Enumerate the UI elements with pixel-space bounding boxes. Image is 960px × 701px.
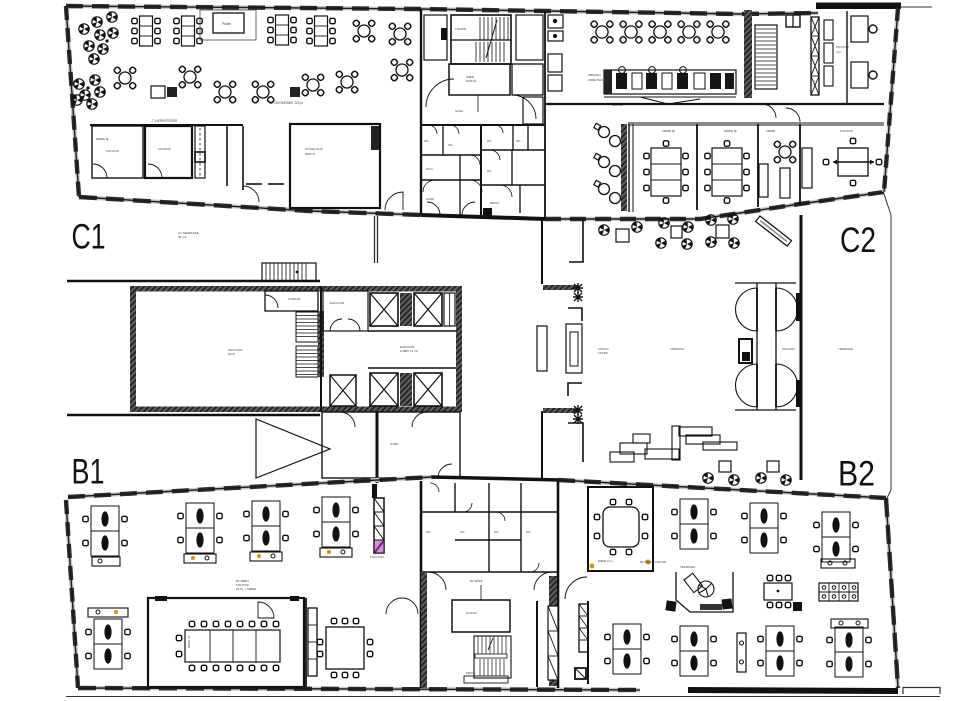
- svg-text:MØDE 8p: MØDE 8p: [662, 129, 676, 133]
- svg-text:GANG: GANG: [455, 109, 463, 113]
- svg-text:VINDFANG: VINDFANG: [670, 347, 684, 351]
- svg-text:GARD: GARD: [426, 197, 434, 201]
- svg-text:2 pl: 2 pl: [836, 50, 841, 54]
- svg-text:WC: WC: [424, 139, 429, 143]
- svg-text:DEPOT: DEPOT: [490, 201, 500, 205]
- svg-text:SPISEOMRÅDE 120 pl: SPISEOMRÅDE 120 pl: [270, 100, 303, 105]
- svg-text:B2: B2: [838, 455, 875, 494]
- svg-text:WC: WC: [494, 530, 499, 534]
- svg-text:KØKKEN: KØKKEN: [588, 73, 601, 77]
- svg-text:REPOS: REPOS: [466, 671, 475, 675]
- svg-text:STORE RUM: STORE RUM: [305, 147, 323, 151]
- svg-text:C1: C1: [72, 218, 106, 257]
- svg-text:C2: C2: [840, 221, 876, 260]
- svg-text:RUM: RUM: [228, 352, 235, 356]
- svg-text:FLUGTVEJ: FLUGTVEJ: [370, 555, 385, 559]
- svg-text:ANRETNING: ANRETNING: [588, 78, 606, 82]
- svg-text:MØDE 18: MØDE 18: [187, 635, 191, 648]
- svg-text:KONTOR: KONTOR: [158, 147, 172, 151]
- svg-text:KONTOR: KONTOR: [106, 149, 120, 153]
- svg-text:B1 MØDE: B1 MØDE: [470, 579, 483, 583]
- svg-text:MØDE 8p: MØDE 8p: [96, 137, 110, 141]
- svg-text:WC H: WC H: [426, 167, 433, 171]
- svg-text:WC: WC: [526, 530, 531, 534]
- svg-text:46 m2: 46 m2: [178, 235, 187, 239]
- svg-text:ELEV.RUM: ELEV.RUM: [330, 301, 345, 305]
- svg-text:TRAPPE: TRAPPE: [455, 27, 466, 31]
- svg-text:KONTOR: KONTOR: [840, 129, 854, 133]
- svg-text:MØDE 8p: MØDE 8p: [724, 129, 738, 133]
- svg-text:MØDE 10 p: MØDE 10 p: [598, 559, 613, 563]
- svg-text:FOYER: FOYER: [598, 351, 608, 355]
- svg-text:RUM 8p: RUM 8p: [466, 79, 477, 83]
- svg-text:INDGANG: INDGANG: [782, 347, 795, 351]
- svg-text:FORRUM: FORRUM: [288, 297, 301, 301]
- svg-text:GARD.: GARD.: [390, 442, 399, 446]
- svg-text:MØDE: MØDE: [766, 129, 775, 133]
- svg-text:WC: WC: [460, 530, 465, 534]
- svg-text:WC: WC: [487, 139, 492, 143]
- svg-text:LOBBY 12 m2: LOBBY 12 m2: [400, 349, 418, 353]
- svg-text:B1: B1: [72, 453, 105, 492]
- svg-text:WC: WC: [426, 530, 431, 534]
- svg-text:WC: WC: [487, 169, 492, 173]
- svg-text:7 VÆRKSTEDER: 7 VÆRKSTEDER: [152, 119, 178, 123]
- svg-text:WC: WC: [448, 143, 453, 147]
- svg-text:TERRASSE: TERRASSE: [838, 347, 853, 351]
- svg-text:WC: WC: [516, 139, 521, 143]
- svg-text:24 PL + MØDE: 24 PL + MØDE: [236, 587, 256, 591]
- svg-text:DEPOT: DEPOT: [305, 152, 316, 156]
- svg-text:Podie: Podie: [222, 22, 231, 26]
- svg-text:TEKØKKEN: TEKØKKEN: [680, 565, 695, 569]
- svg-text:B2 ÅBEN KONTOR: B2 ÅBEN KONTOR: [640, 559, 667, 564]
- svg-text:AV-RUM: AV-RUM: [466, 611, 477, 615]
